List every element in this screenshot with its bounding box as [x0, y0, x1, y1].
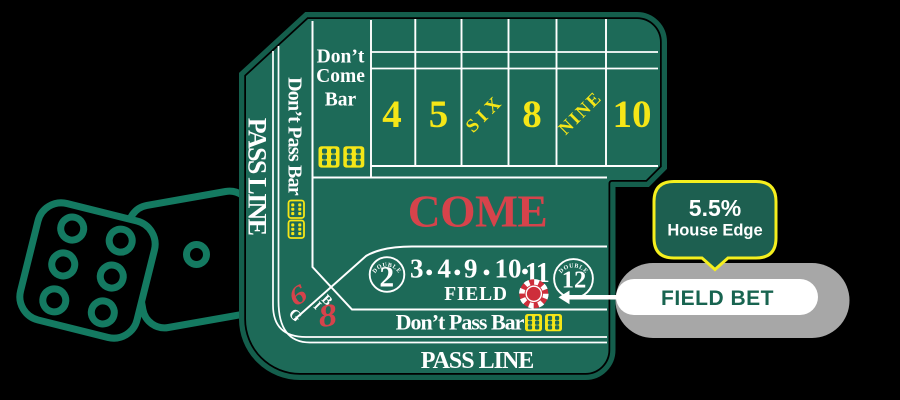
svg-text:9: 9 — [464, 254, 478, 284]
svg-text:4: 4 — [437, 254, 451, 284]
svg-text:12: 12 — [562, 267, 587, 294]
svg-text:10: 10 — [613, 93, 652, 136]
svg-text:Bar: Bar — [325, 89, 357, 110]
svg-text:House Edge: House Edge — [667, 222, 762, 240]
svg-text:PASS LINE: PASS LINE — [421, 348, 534, 374]
svg-text:10: 10 — [495, 254, 522, 284]
svg-text:5: 5 — [429, 93, 449, 136]
svg-text:8: 8 — [522, 93, 542, 136]
svg-text:PASS LINE: PASS LINE — [243, 118, 272, 236]
svg-text:Don’t Pass Bar: Don’t Pass Bar — [396, 310, 525, 335]
svg-text:Don’t: Don’t — [317, 47, 365, 68]
svg-text:COME: COME — [408, 186, 548, 237]
svg-text:Come: Come — [316, 66, 365, 87]
svg-text:FIELD: FIELD — [444, 284, 508, 305]
svg-text:5.5%: 5.5% — [689, 195, 741, 221]
svg-text:4: 4 — [382, 93, 402, 136]
svg-text:2: 2 — [379, 262, 394, 294]
svg-text:FIELD BET: FIELD BET — [661, 287, 774, 310]
svg-text:3: 3 — [410, 254, 424, 284]
svg-text:Don’t Pass Bar: Don’t Pass Bar — [284, 77, 306, 196]
